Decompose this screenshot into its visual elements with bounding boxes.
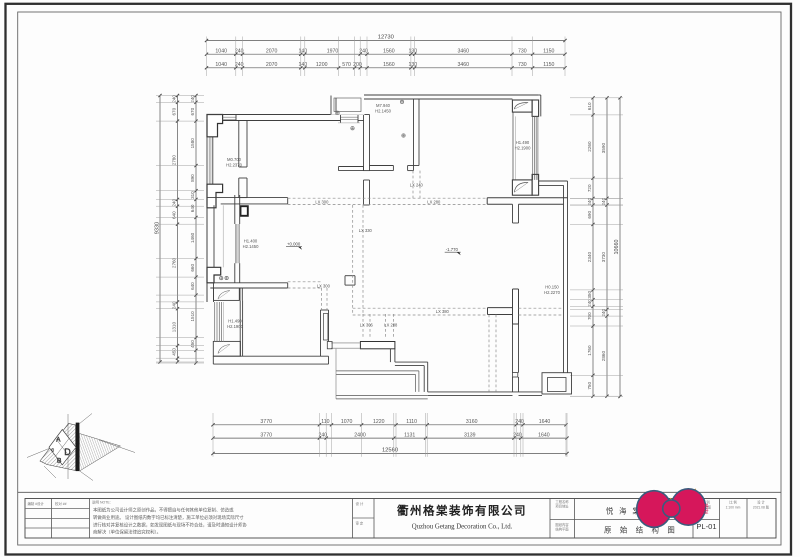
svg-text:240: 240 bbox=[601, 309, 606, 317]
svg-text:2340: 2340 bbox=[587, 252, 592, 263]
svg-text:110: 110 bbox=[321, 419, 329, 425]
svg-text:720: 720 bbox=[587, 184, 592, 192]
svg-text:1131: 1131 bbox=[404, 433, 415, 439]
svg-text:c: c bbox=[51, 448, 54, 454]
svg-text:1560: 1560 bbox=[383, 62, 395, 68]
svg-text:本图纸为公司设计师之原创作品，不得擅自与任何其他单位复制、仿: 本图纸为公司设计师之原创作品，不得擅自与任何其他单位复制、仿造或 bbox=[93, 507, 234, 514]
svg-text:240: 240 bbox=[318, 433, 327, 439]
svg-text:570: 570 bbox=[342, 62, 351, 68]
svg-text:项目地址: 项目地址 bbox=[555, 504, 569, 509]
svg-text:2760: 2760 bbox=[171, 257, 176, 268]
svg-text:LX 330: LX 330 bbox=[359, 228, 373, 233]
svg-text:240: 240 bbox=[171, 95, 176, 103]
svg-text:H1.490: H1.490 bbox=[516, 140, 530, 145]
svg-text:670: 670 bbox=[171, 107, 176, 115]
svg-text:240: 240 bbox=[359, 49, 368, 55]
svg-text:2070: 2070 bbox=[266, 62, 278, 68]
svg-text:240: 240 bbox=[171, 199, 176, 207]
svg-text:M0.700: M0.700 bbox=[227, 157, 242, 162]
svg-text:-1.770: -1.770 bbox=[446, 247, 459, 252]
svg-text:9330: 9330 bbox=[154, 222, 160, 234]
svg-text:140: 140 bbox=[298, 49, 307, 55]
svg-text:设 计: 设 计 bbox=[757, 500, 765, 505]
svg-text:2860: 2860 bbox=[601, 351, 606, 362]
svg-text:670: 670 bbox=[190, 107, 195, 115]
svg-text:3460: 3460 bbox=[458, 62, 470, 68]
svg-text:350: 350 bbox=[587, 291, 592, 299]
svg-text:3590: 3590 bbox=[601, 143, 606, 154]
svg-text:240: 240 bbox=[601, 197, 606, 205]
svg-text:2780: 2780 bbox=[171, 155, 176, 166]
svg-text:转做商业用途。 设计图纸内数字均已标注清楚，施工单位必: 转做商业用途。 设计图纸内数字均已标注清楚，施工单位必须对现场实际尺寸 bbox=[93, 514, 244, 521]
svg-text:890: 890 bbox=[190, 174, 195, 182]
svg-text:衢州格棠装饰有限公司: 衢州格棠装饰有限公司 bbox=[397, 504, 527, 518]
svg-text:240: 240 bbox=[190, 95, 195, 103]
svg-text:12730: 12730 bbox=[378, 35, 394, 41]
svg-text:3460: 3460 bbox=[458, 49, 470, 55]
svg-text:730: 730 bbox=[518, 49, 527, 55]
svg-text:LX 380: LX 380 bbox=[436, 309, 450, 314]
svg-text:编制 #设计: 编制 #设计 bbox=[28, 501, 45, 506]
svg-text:工程名称: 工程名称 bbox=[555, 499, 569, 504]
svg-text:LX 280: LX 280 bbox=[427, 200, 441, 205]
svg-text:H2.1450: H2.1450 bbox=[243, 244, 260, 249]
svg-text:660: 660 bbox=[190, 264, 195, 272]
svg-text:校对 ##: 校对 ## bbox=[55, 501, 67, 506]
svg-text:+0.000: +0.000 bbox=[287, 242, 301, 247]
svg-text:3160: 3160 bbox=[466, 419, 478, 425]
svg-text:450: 450 bbox=[190, 340, 195, 348]
svg-text:图纸内容: 图纸内容 bbox=[555, 522, 569, 527]
svg-text:1510: 1510 bbox=[190, 311, 195, 322]
svg-text:说明 NOTE:: 说明 NOTE: bbox=[92, 500, 111, 505]
svg-text:进行核对并复核设计之数据，如发现图纸与现场不符合处，请及时通: 进行核对并复核设计之数据，如发现图纸与现场不符合处，请及时通知设计师协 bbox=[93, 521, 247, 528]
svg-text:130: 130 bbox=[408, 62, 417, 68]
svg-text:1760: 1760 bbox=[587, 345, 592, 356]
svg-text:1040: 1040 bbox=[215, 49, 227, 55]
svg-text:原 始 结 构 图: 原 始 结 构 图 bbox=[604, 526, 678, 535]
svg-text:3730: 3730 bbox=[601, 252, 606, 263]
svg-text:1640: 1640 bbox=[538, 433, 550, 439]
svg-text:240: 240 bbox=[171, 301, 176, 309]
svg-text:1220: 1220 bbox=[373, 419, 385, 425]
svg-text:3139: 3139 bbox=[464, 433, 476, 439]
svg-text:3770: 3770 bbox=[260, 433, 272, 439]
svg-text:H1.400: H1.400 bbox=[244, 239, 258, 244]
svg-text:610: 610 bbox=[587, 102, 592, 110]
svg-text:2070: 2070 bbox=[266, 49, 278, 55]
svg-text:1150: 1150 bbox=[543, 49, 554, 55]
svg-text:730: 730 bbox=[518, 62, 527, 68]
svg-text:H2.1900: H2.1900 bbox=[227, 324, 244, 329]
svg-text:1310: 1310 bbox=[171, 322, 176, 333]
svg-text:690: 690 bbox=[587, 211, 592, 219]
svg-text:1580: 1580 bbox=[190, 138, 195, 149]
svg-text:2260: 2260 bbox=[587, 141, 592, 152]
svg-text:H0.150: H0.150 bbox=[545, 285, 559, 290]
svg-text:M7.940: M7.940 bbox=[376, 103, 391, 108]
svg-text:LX 288: LX 288 bbox=[384, 322, 398, 327]
svg-text:堂: 堂 bbox=[704, 509, 709, 516]
svg-text:12560: 12560 bbox=[382, 448, 398, 454]
svg-text:240: 240 bbox=[513, 433, 522, 439]
svg-text:2400: 2400 bbox=[354, 433, 366, 439]
svg-text:LX 300: LX 300 bbox=[317, 283, 331, 288]
svg-text:10660: 10660 bbox=[614, 240, 620, 255]
svg-text:450: 450 bbox=[171, 348, 176, 356]
svg-text:比 例: 比 例 bbox=[729, 500, 737, 505]
svg-text:LX 300: LX 300 bbox=[315, 200, 329, 205]
svg-text:设 计: 设 计 bbox=[356, 501, 364, 506]
svg-text:H2.2270: H2.2270 bbox=[544, 290, 561, 295]
svg-text:H2.1900: H2.1900 bbox=[515, 146, 532, 151]
svg-text:240: 240 bbox=[587, 299, 592, 307]
svg-text:130: 130 bbox=[408, 49, 417, 55]
svg-text:D: D bbox=[64, 447, 71, 457]
svg-text:240: 240 bbox=[515, 419, 524, 425]
svg-text:H1.490: H1.490 bbox=[228, 319, 242, 324]
svg-text:3770: 3770 bbox=[260, 419, 272, 425]
svg-text:1040: 1040 bbox=[215, 62, 227, 68]
svg-text:1070: 1070 bbox=[341, 419, 353, 425]
svg-text:H2.2370: H2.2370 bbox=[226, 163, 243, 168]
svg-text:LX 240: LX 240 bbox=[410, 183, 424, 188]
svg-text:1640: 1640 bbox=[539, 419, 551, 425]
svg-text:1:100 mm: 1:100 mm bbox=[726, 506, 741, 510]
svg-text:310: 310 bbox=[190, 191, 195, 199]
svg-text:640: 640 bbox=[190, 204, 195, 212]
svg-text:LX 306: LX 306 bbox=[360, 322, 374, 327]
svg-text:640: 640 bbox=[190, 282, 195, 290]
svg-text:1110: 1110 bbox=[406, 419, 417, 425]
svg-text:140: 140 bbox=[298, 62, 307, 68]
svg-text:1460: 1460 bbox=[190, 232, 195, 243]
svg-text:H2.1450: H2.1450 bbox=[375, 109, 392, 114]
svg-text:结构平面: 结构平面 bbox=[555, 527, 569, 532]
svg-text:2021.08 版: 2021.08 版 bbox=[753, 505, 770, 510]
svg-text:640: 640 bbox=[171, 211, 176, 219]
svg-text:1970: 1970 bbox=[327, 49, 339, 55]
svg-text:PL-01: PL-01 bbox=[696, 522, 716, 531]
svg-text:1200: 1200 bbox=[316, 62, 328, 68]
svg-text:1150: 1150 bbox=[543, 62, 554, 68]
svg-text:审 定: 审 定 bbox=[356, 521, 364, 526]
svg-text:B: B bbox=[57, 458, 62, 465]
svg-text:商解决（单位保留法律追究权利）。: 商解决（单位保留法律追究权利）。 bbox=[93, 529, 161, 536]
svg-text:750: 750 bbox=[587, 382, 592, 390]
svg-text:240: 240 bbox=[587, 198, 592, 206]
svg-text:Quzhou Getang Decoration Co.,: Quzhou Getang Decoration Co., Ltd. bbox=[412, 524, 513, 531]
svg-text:1560: 1560 bbox=[383, 49, 395, 55]
